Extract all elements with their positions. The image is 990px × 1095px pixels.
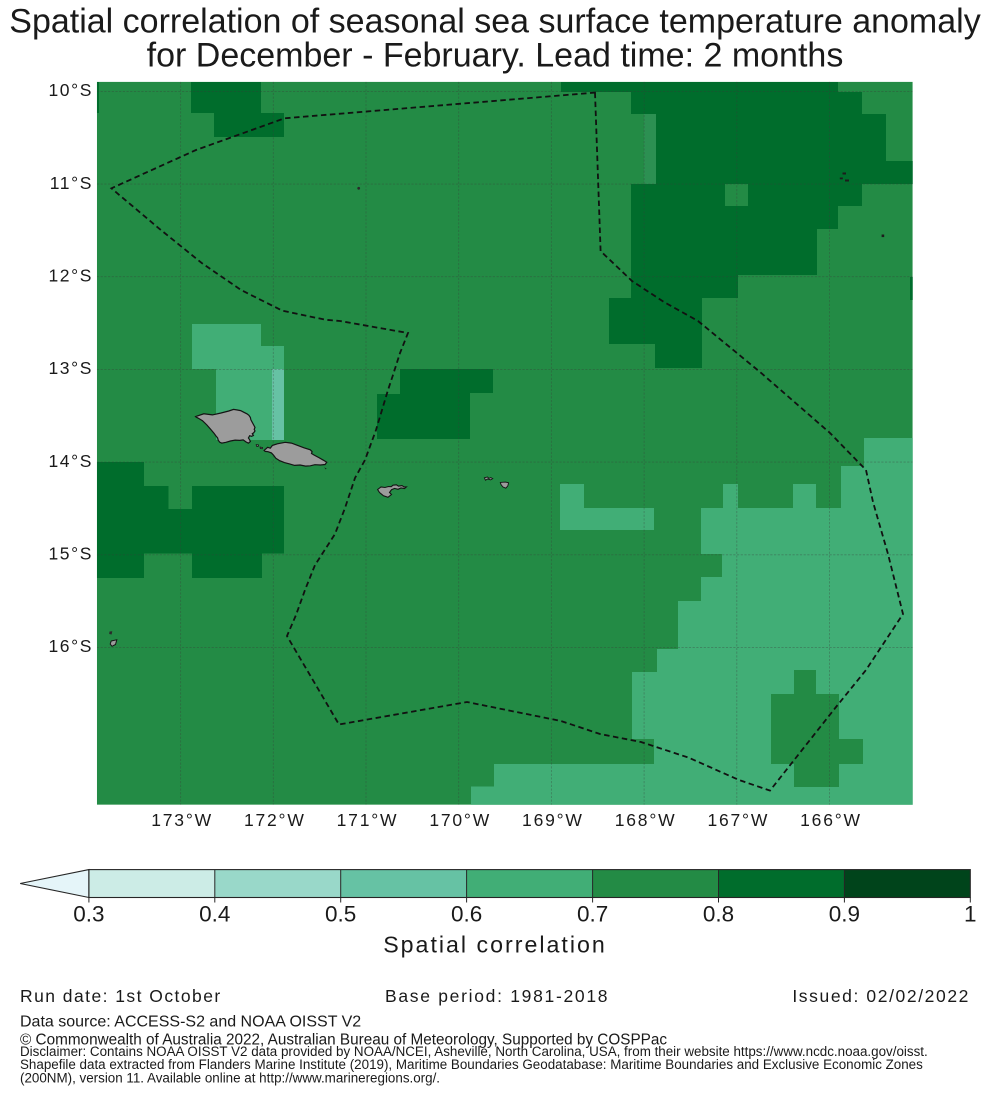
svg-text:0.6: 0.6 — [451, 901, 482, 926]
svg-text:Data source: ACCESS-S2 and NOA: Data source: ACCESS-S2 and NOAA OISST V2 — [20, 1014, 361, 1031]
svg-text:172°W: 172°W — [244, 810, 306, 830]
svg-text:16°S: 16°S — [48, 636, 93, 656]
svg-text:171°W: 171°W — [337, 810, 399, 830]
svg-text:Base period: 1981-2018: Base period: 1981-2018 — [385, 986, 609, 1006]
svg-text:for December - February. Lead: for December - February. Lead time: 2 mo… — [147, 37, 844, 75]
svg-text:167°W: 167°W — [707, 810, 769, 830]
svg-text:170°W: 170°W — [429, 810, 491, 830]
svg-text:12°S: 12°S — [48, 266, 93, 286]
svg-text:13°S: 13°S — [48, 358, 93, 378]
svg-text:11°S: 11°S — [50, 173, 93, 193]
svg-text:0.3: 0.3 — [73, 901, 104, 926]
svg-text:166°W: 166°W — [800, 810, 862, 830]
svg-text:Spatial correlation: Spatial correlation — [383, 932, 607, 958]
svg-text:0.8: 0.8 — [703, 901, 734, 926]
svg-text:14°S: 14°S — [48, 451, 93, 471]
svg-text:Spatial correlation of seasona: Spatial correlation of seasonal sea surf… — [9, 3, 980, 41]
svg-text:1: 1 — [964, 901, 977, 926]
svg-text:Issued: 02/02/2022: Issued: 02/02/2022 — [792, 986, 970, 1006]
svg-text:Run date: 1st October: Run date: 1st October — [20, 986, 222, 1006]
svg-text:10°S: 10°S — [48, 80, 93, 100]
svg-text:(200NM), version 11. Available: (200NM), version 11. Available online at… — [20, 1071, 440, 1086]
svg-text:0.9: 0.9 — [829, 901, 860, 926]
svg-text:0.4: 0.4 — [199, 901, 230, 926]
svg-text:0.7: 0.7 — [577, 901, 608, 926]
svg-text:168°W: 168°W — [615, 810, 677, 830]
svg-text:173°W: 173°W — [151, 810, 213, 830]
svg-text:0.5: 0.5 — [325, 901, 356, 926]
svg-text:15°S: 15°S — [48, 544, 93, 564]
svg-text:169°W: 169°W — [522, 810, 584, 830]
